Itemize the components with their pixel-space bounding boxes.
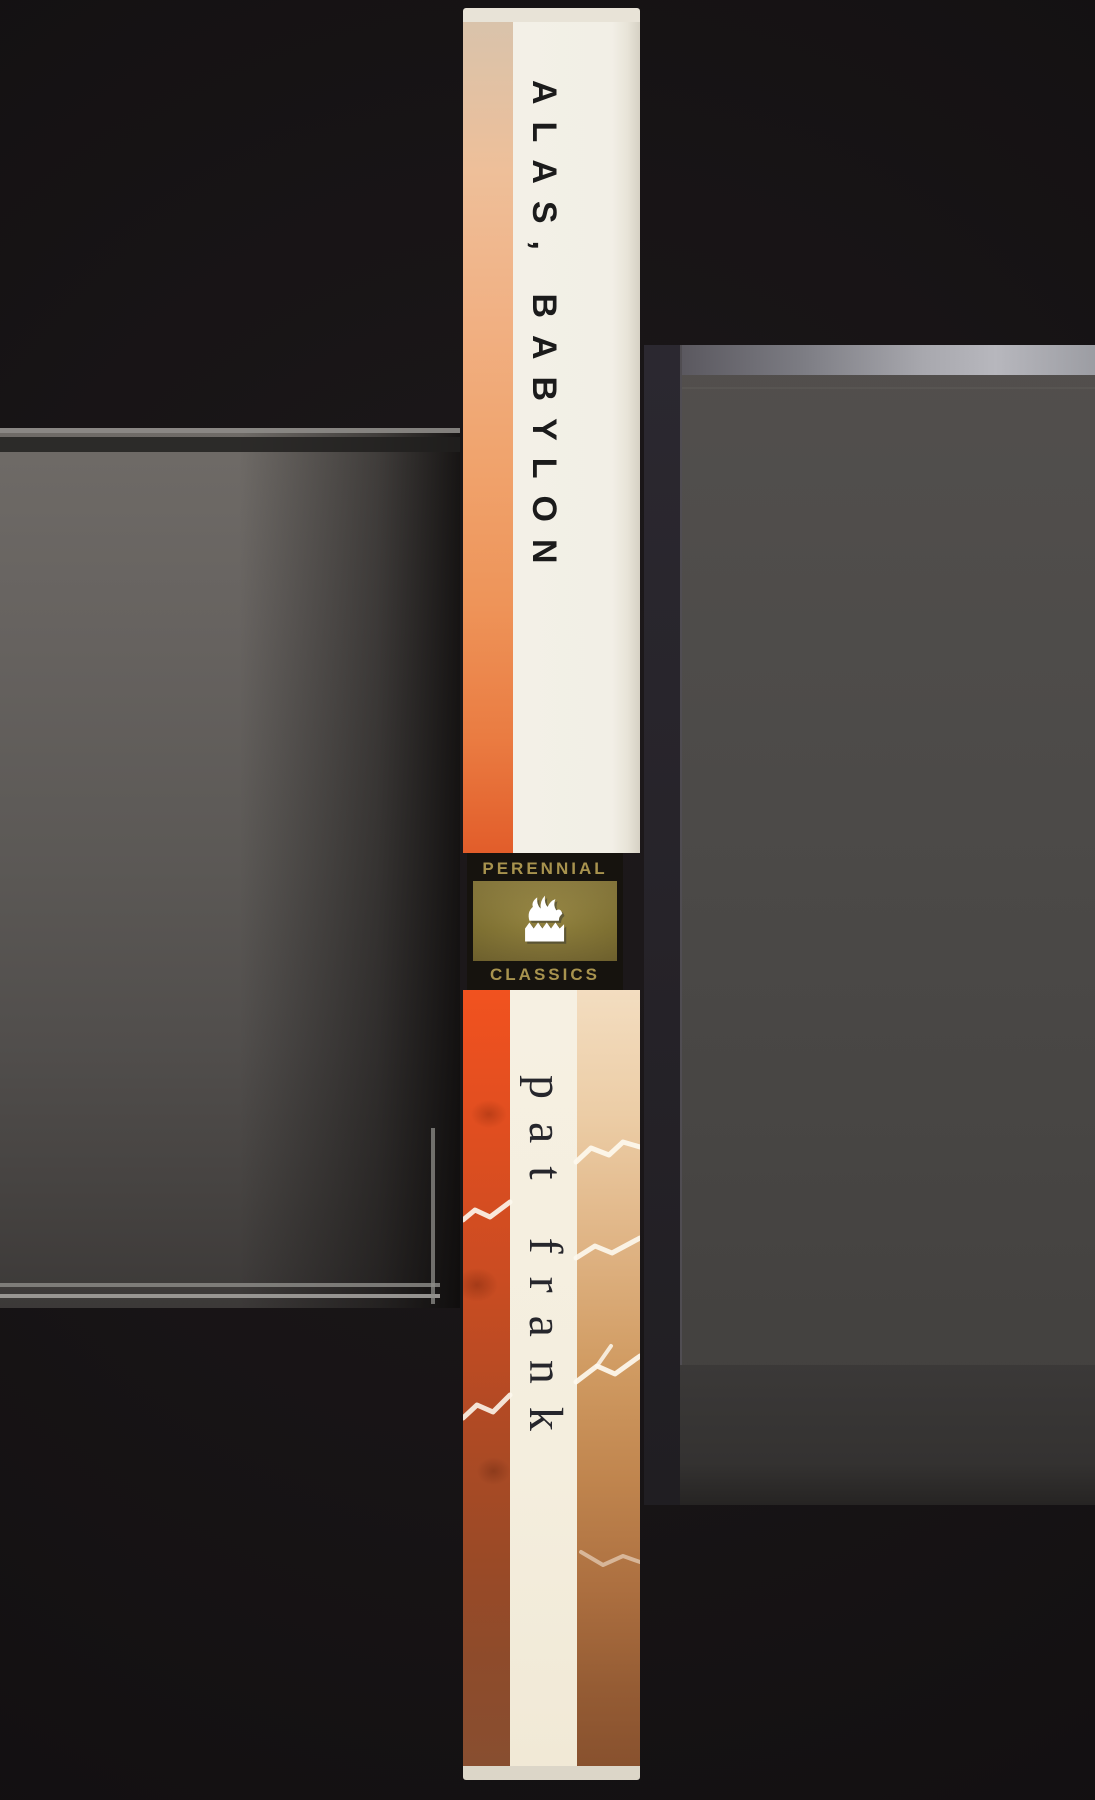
right-case-bevel-line xyxy=(682,387,1095,389)
left-media-case xyxy=(0,428,460,1308)
spine-top-paper-edge xyxy=(463,8,640,22)
right-case-lower-band xyxy=(680,1365,1095,1505)
right-case-top-edge-highlight xyxy=(644,345,1095,375)
left-case-bottom-edge-line xyxy=(0,1294,440,1298)
left-case-top-edge-shadow xyxy=(0,437,460,452)
spine-orange-stripe xyxy=(463,22,513,853)
publisher-logo-gold-square xyxy=(473,881,617,961)
left-case-bottom-edge-line xyxy=(0,1283,440,1287)
left-case-right-edge-line xyxy=(431,1128,435,1304)
spine-author: pat frank xyxy=(518,1075,573,1454)
book-spine: ALAS, BABYLON PERENNIAL xyxy=(463,8,640,1780)
right-case-left-edge xyxy=(644,345,682,1505)
spine-title: ALAS, BABYLON xyxy=(524,80,563,581)
right-media-case xyxy=(644,345,1095,1505)
scanner-background: ALAS, BABYLON PERENNIAL xyxy=(0,0,1095,1800)
publisher-name-top: PERENNIAL xyxy=(467,860,623,877)
publisher-name-bottom: CLASSICS xyxy=(467,966,623,983)
left-case-top-edge-highlight xyxy=(0,428,460,433)
spine-bottom-paper-edge xyxy=(463,1766,640,1780)
publisher-logo: PERENNIAL CLASSICS xyxy=(467,853,623,990)
flame-over-waves-icon xyxy=(519,893,571,950)
